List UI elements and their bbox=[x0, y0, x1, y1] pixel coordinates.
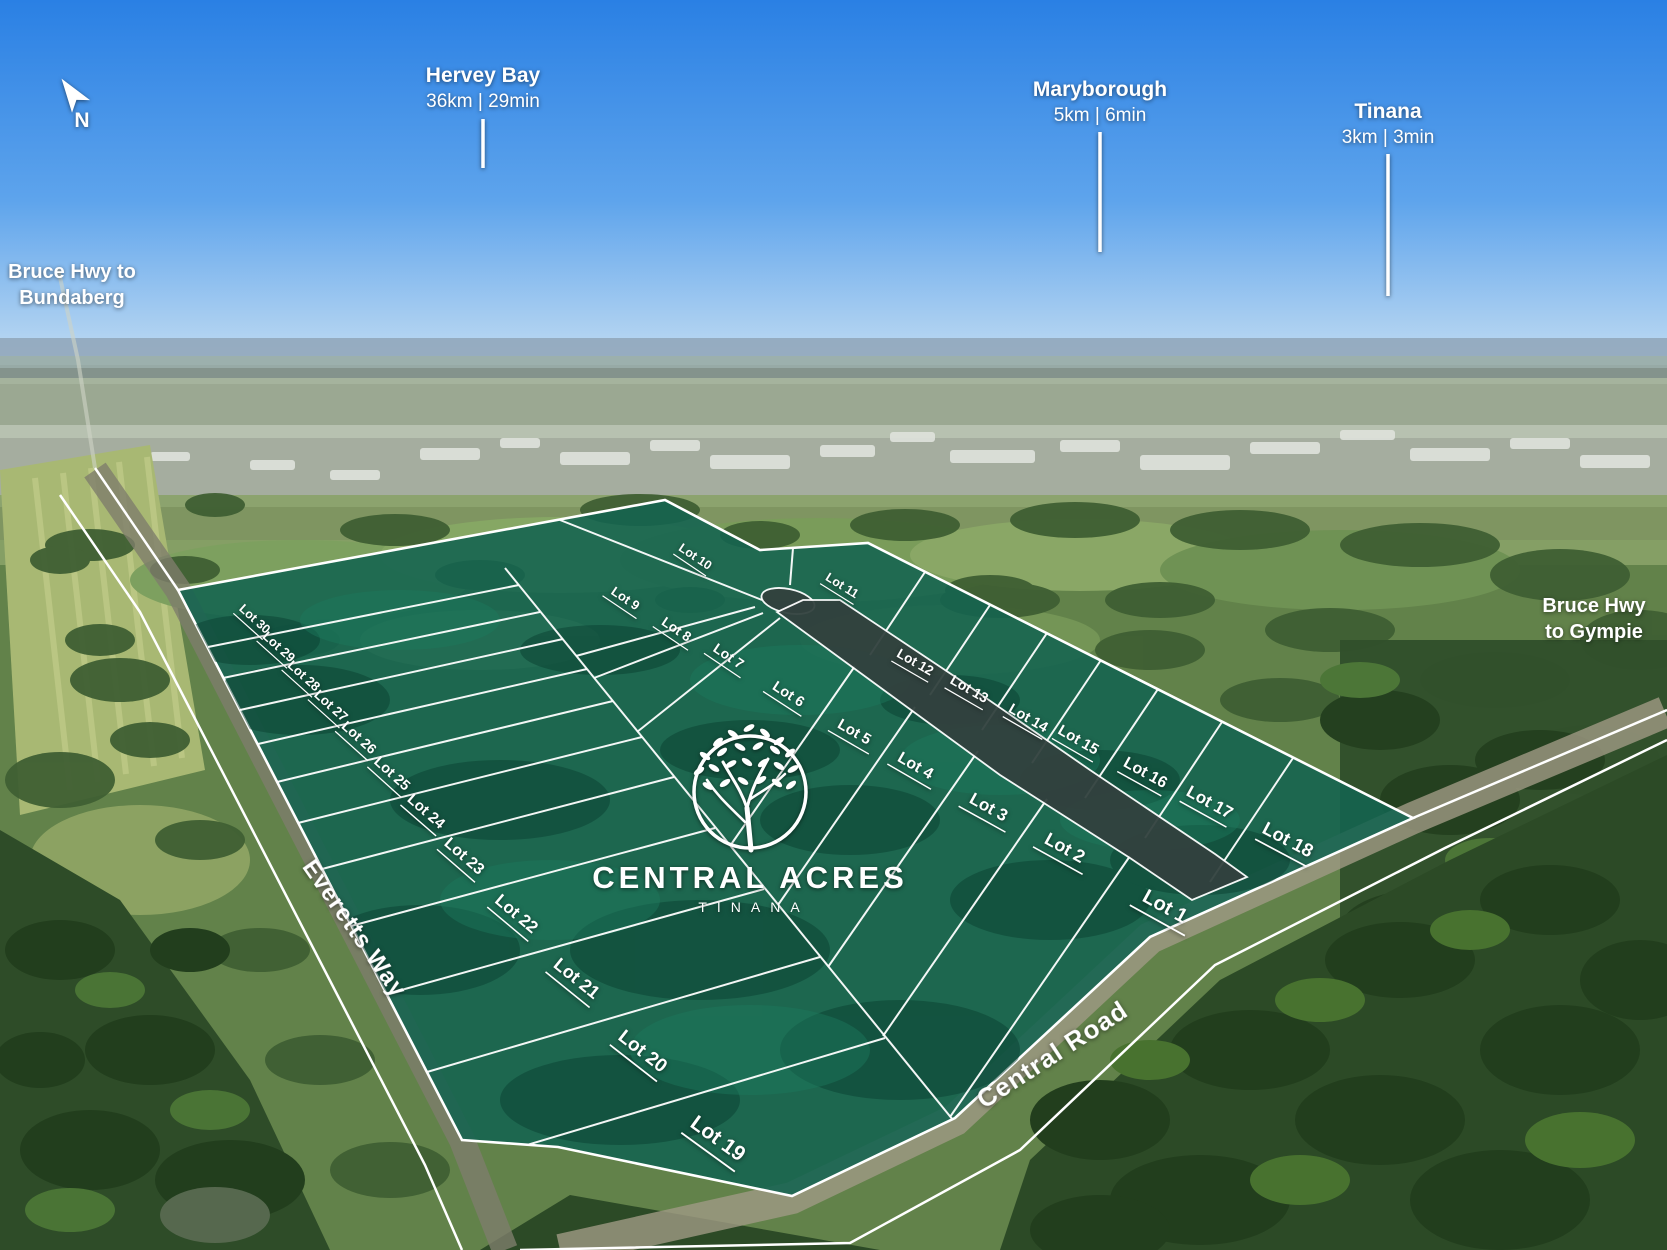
destination-distance: 5km | 6min bbox=[1054, 105, 1147, 126]
bruce-hwy-bundaberg-label-line2: Bundaberg bbox=[19, 287, 125, 309]
north-label: N bbox=[74, 109, 89, 132]
destination-name: Tinana bbox=[1354, 100, 1422, 123]
estate-aerial-map: Lot 1Lot 2Lot 3Lot 4Lot 5Lot 6Lot 7Lot 8… bbox=[0, 0, 1667, 1250]
bruce-hwy-gympie-label-line1: Bruce Hwy bbox=[1542, 595, 1646, 617]
destination-name: Hervey Bay bbox=[426, 64, 541, 87]
destination-name: Maryborough bbox=[1033, 78, 1167, 101]
bruce-hwy-bundaberg-label-line1: Bruce Hwy to bbox=[8, 261, 136, 283]
bruce-hwy-gympie-label-line2: to Gympie bbox=[1545, 621, 1643, 643]
aerial-map-canvas: Lot 1Lot 2Lot 3Lot 4Lot 5Lot 6Lot 7Lot 8… bbox=[0, 0, 1667, 1250]
logo-title: CENTRAL ACRES bbox=[592, 860, 908, 895]
destination-distance: 36km | 29min bbox=[426, 91, 540, 112]
logo-subtitle: TINANA bbox=[698, 899, 809, 915]
destination-distance: 3km | 3min bbox=[1342, 127, 1435, 148]
pond bbox=[160, 1187, 270, 1243]
